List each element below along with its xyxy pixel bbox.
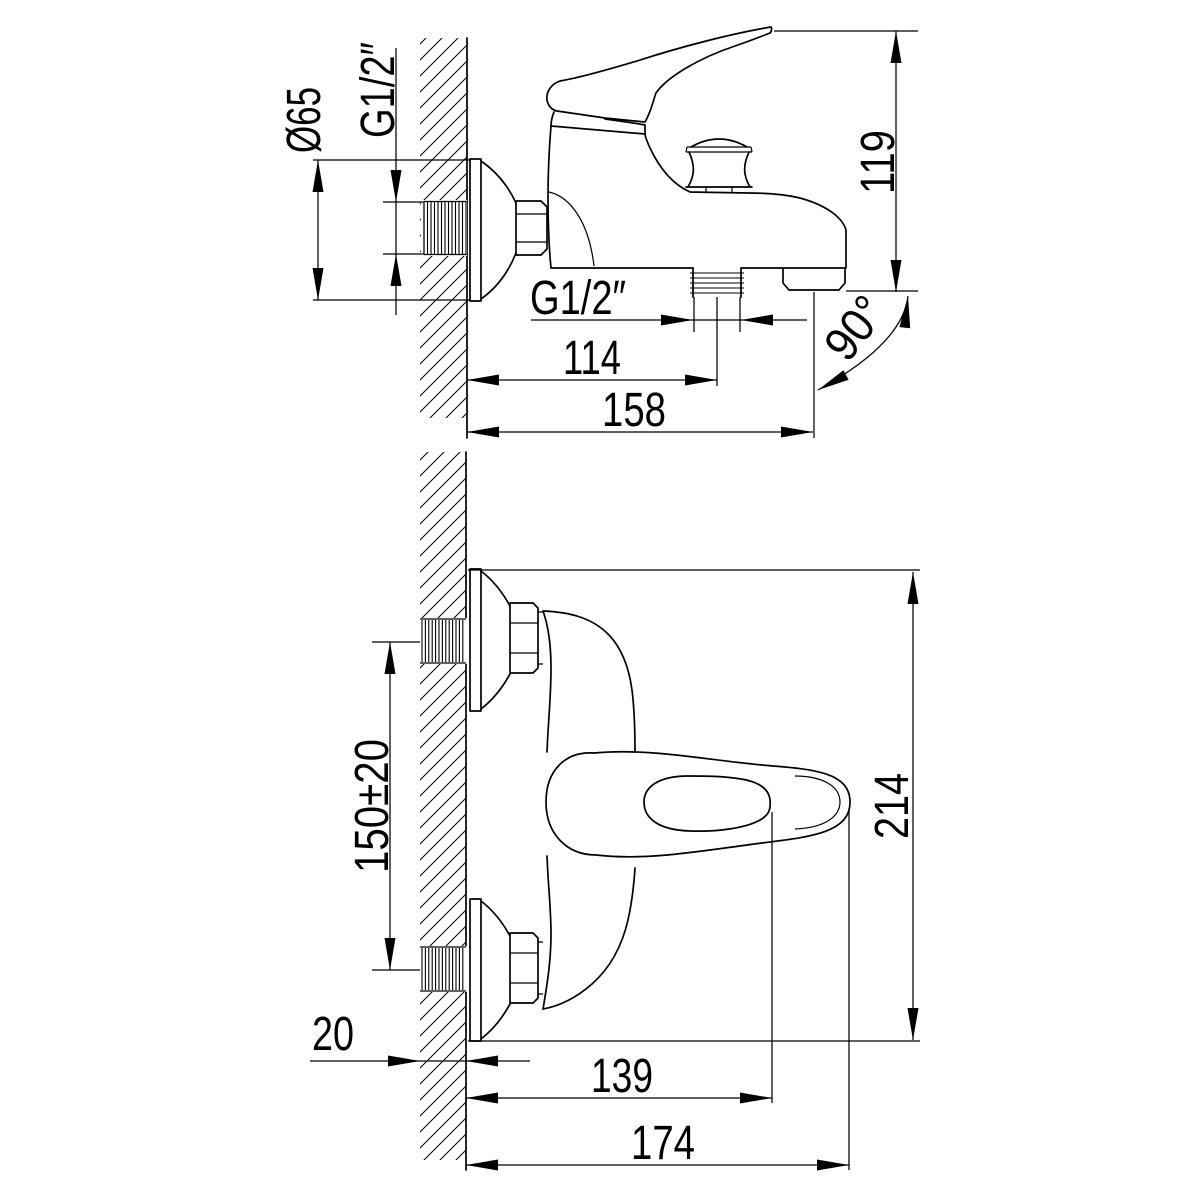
wall-hatch-top (420, 452, 466, 1160)
spout-end-cap-side (783, 268, 845, 290)
diverter-body (686, 152, 752, 187)
diverter-knob (686, 139, 752, 193)
wall-section-top (419, 452, 467, 1170)
faucet-technical-drawing: Ø65 G1/2″ 119 G1/2″ (0, 0, 1200, 1200)
dim-wall-to-outlet-label: 114 (563, 332, 621, 385)
shower-outlet-threads (690, 273, 744, 293)
escutcheon-cone-lower (481, 901, 510, 1039)
hex-nut-facets-side (516, 214, 547, 242)
escutcheon-flange-side (470, 159, 481, 301)
lever-tip-contour-top (795, 776, 840, 829)
escutcheon-top-upper (470, 569, 543, 711)
wall-section-side (420, 38, 467, 438)
dim-wall-thread: G1/2″ (352, 42, 424, 315)
body-bell-lower (543, 868, 635, 1009)
dim-shower-thread: G1/2″ (530, 272, 807, 332)
dim-connection-spacing-label: 150±20 (346, 739, 399, 873)
dim-spout-angle: 90° (815, 286, 911, 390)
lever-handle-side (547, 27, 772, 122)
top-view: 150±20 214 20 139 (310, 452, 920, 1171)
dim-overall-width: 214 (468, 570, 920, 1041)
escutcheon-cone-upper (481, 571, 510, 709)
escutcheon-flange-lower (470, 899, 481, 1041)
hex-nut-upper (510, 603, 538, 673)
diverter-dome (691, 139, 747, 147)
dim-shower-thread-label: G1/2″ (530, 272, 626, 325)
dim-spout-angle-label: 90° (815, 286, 897, 371)
cartridge-collar-side (551, 112, 645, 134)
lever-grip-recess-top (644, 776, 770, 831)
diverter-brim (686, 147, 752, 152)
technical-drawing-page: Ø65 G1/2″ 119 G1/2″ (0, 0, 1200, 1200)
side-view: Ø65 G1/2″ 119 G1/2″ (278, 27, 918, 438)
faucet-body-top (543, 611, 850, 1009)
dimensions-top: 150±20 214 20 139 (310, 570, 920, 1171)
hex-nut-lower (510, 933, 538, 1003)
dim-wall-to-grip-label: 139 (591, 1050, 653, 1103)
dim-wall-thread-label: G1/2″ (352, 42, 405, 138)
body-foot-contour-side (549, 192, 594, 266)
escutcheon-flange-upper (470, 569, 481, 711)
dim-connection-spacing: 150±20 (346, 642, 420, 970)
hex-nut-side (516, 201, 547, 255)
dim-wall-to-spout: 158 (467, 292, 814, 438)
escutcheon-top-lower (470, 899, 543, 1041)
dim-wall-to-handle: 174 (466, 810, 849, 1171)
dimensions-side: Ø65 G1/2″ 119 G1/2″ (278, 31, 918, 438)
dim-overall-height-label: 119 (852, 130, 905, 194)
dim-wall-to-handle-label: 174 (631, 1117, 695, 1170)
body-bell-upper (543, 611, 635, 752)
shower-outlet-side (690, 268, 744, 297)
faucet-body-side (547, 27, 846, 297)
lever-handle-top (546, 752, 850, 857)
dim-wall-to-grip: 139 (466, 812, 772, 1104)
dim-wall-to-spout-label: 158 (602, 384, 666, 437)
dim-wall-thickness-label: 20 (312, 1008, 354, 1061)
dim-overall-width-label: 214 (866, 773, 919, 839)
dim-escutcheon-diameter-label: Ø65 (278, 87, 331, 153)
escutcheon-cone-side (481, 161, 516, 299)
